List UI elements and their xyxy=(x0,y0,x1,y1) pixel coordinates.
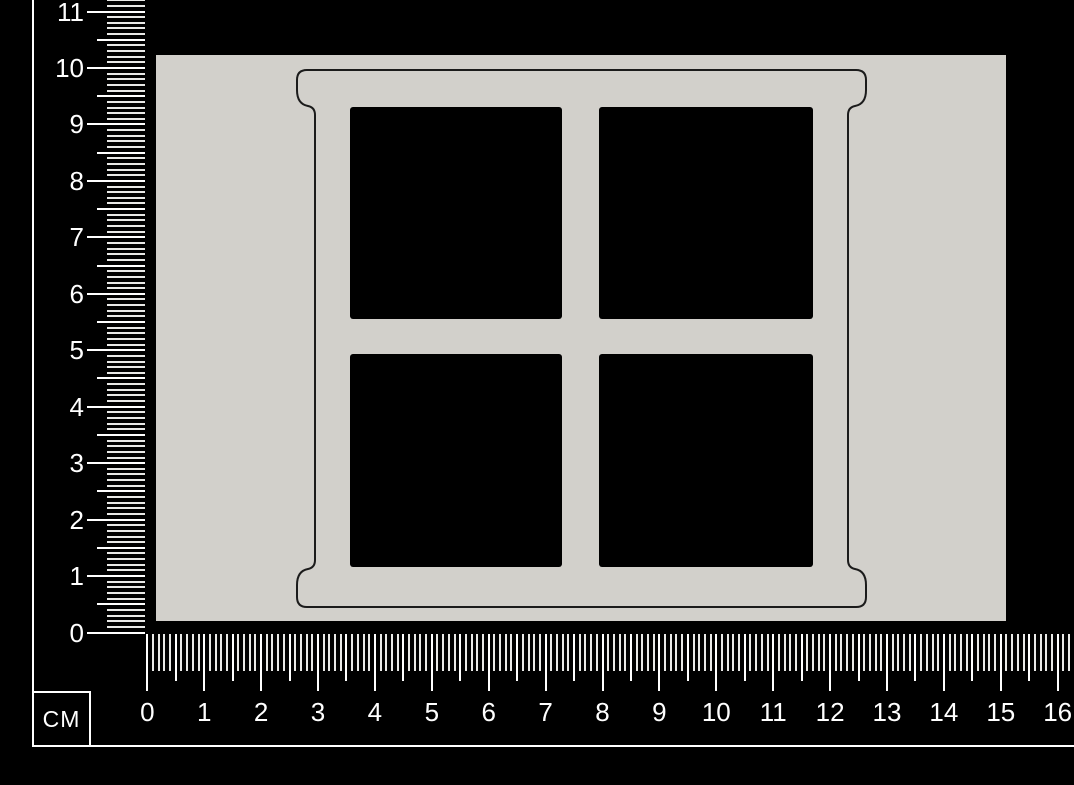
mm-tick xyxy=(363,634,365,671)
mm-tick xyxy=(425,634,427,671)
mm-tick xyxy=(562,634,564,671)
mm-tick xyxy=(107,78,145,80)
mm-tick xyxy=(107,259,145,261)
half-cm-tick xyxy=(687,634,689,681)
cm-tick xyxy=(87,349,145,351)
mm-tick xyxy=(107,101,145,103)
mm-tick xyxy=(107,276,145,278)
mm-tick xyxy=(158,634,160,671)
mm-tick xyxy=(107,355,145,357)
half-cm-tick xyxy=(345,634,347,681)
mm-tick xyxy=(670,634,672,671)
half-cm-tick xyxy=(97,434,145,436)
mm-tick xyxy=(1045,634,1047,671)
cm-tick xyxy=(203,634,205,691)
mm-tick xyxy=(107,327,145,329)
mm-tick xyxy=(852,634,854,671)
mm-tick xyxy=(107,581,145,583)
mm-tick xyxy=(107,73,145,75)
mm-tick xyxy=(323,634,325,671)
cm-tick xyxy=(545,634,547,691)
cm-tick xyxy=(602,634,604,691)
mm-tick xyxy=(465,634,467,671)
mm-tick xyxy=(528,634,530,671)
half-cm-tick xyxy=(232,634,234,681)
mm-tick xyxy=(880,634,882,671)
horizontal-ruler: 012345678910111213141516 xyxy=(0,630,1074,740)
vertical-ruler-ticks xyxy=(87,0,145,650)
mm-tick xyxy=(1023,634,1025,671)
cm-tick xyxy=(87,406,145,408)
horizontal-ruler-label: 12 xyxy=(800,697,860,727)
half-cm-tick xyxy=(573,634,575,681)
horizontal-ruler-label: 1 xyxy=(174,697,234,727)
mm-tick xyxy=(107,197,145,199)
mm-tick xyxy=(107,140,145,142)
vertical-ruler-label: 9 xyxy=(28,109,84,139)
mm-tick xyxy=(107,592,145,594)
mm-tick xyxy=(169,634,171,671)
mm-tick xyxy=(107,473,145,475)
mm-tick xyxy=(778,634,780,671)
mm-tick xyxy=(107,118,145,120)
cm-tick xyxy=(431,634,433,691)
mm-tick xyxy=(903,634,905,671)
mm-tick xyxy=(163,634,165,671)
mm-tick xyxy=(897,634,899,671)
mm-tick xyxy=(186,634,188,671)
vertical-ruler-labels: 01234567891011 xyxy=(28,0,84,650)
mm-tick xyxy=(482,634,484,671)
mm-tick xyxy=(533,634,535,671)
horizontal-ruler-label: 5 xyxy=(402,697,462,727)
cm-tick xyxy=(87,519,145,521)
mm-tick xyxy=(107,27,145,29)
mm-tick xyxy=(107,451,145,453)
mm-tick xyxy=(835,634,837,671)
mm-tick xyxy=(579,634,581,671)
mm-tick xyxy=(180,634,182,671)
mm-tick xyxy=(505,634,507,671)
window-pane-bottom-left xyxy=(350,354,562,567)
mm-tick xyxy=(840,634,842,671)
mm-tick xyxy=(641,634,643,671)
mm-tick xyxy=(954,634,956,671)
mm-tick xyxy=(107,16,145,18)
horizontal-ruler-ticks xyxy=(0,634,1074,692)
mm-tick xyxy=(380,634,382,671)
cm-tick xyxy=(87,11,145,13)
horizontal-ruler-label: 15 xyxy=(971,697,1031,727)
half-cm-tick xyxy=(402,634,404,681)
mm-tick xyxy=(152,634,154,671)
mm-tick xyxy=(607,634,609,671)
half-cm-tick xyxy=(97,39,145,41)
horizontal-ruler-labels: 012345678910111213141516 xyxy=(0,697,1074,729)
half-cm-tick xyxy=(289,634,291,681)
vertical-ruler-label: 5 xyxy=(28,335,84,365)
mm-tick xyxy=(875,634,877,671)
half-cm-tick xyxy=(97,208,145,210)
mm-tick xyxy=(391,634,393,671)
mm-tick xyxy=(454,634,456,671)
mm-tick xyxy=(784,634,786,671)
unit-label: CM xyxy=(43,706,81,733)
mm-tick xyxy=(419,634,421,671)
mm-tick xyxy=(107,214,145,216)
cm-tick xyxy=(488,634,490,691)
mm-tick xyxy=(107,191,145,193)
vertical-ruler-label: 7 xyxy=(28,222,84,252)
mm-tick xyxy=(522,634,524,671)
mm-tick xyxy=(107,513,145,515)
mm-tick xyxy=(107,383,145,385)
horizontal-ruler-label: 11 xyxy=(743,697,803,727)
half-cm-tick xyxy=(516,634,518,681)
mm-tick xyxy=(283,634,285,671)
border-line-vertical xyxy=(32,0,34,692)
mm-tick xyxy=(107,253,145,255)
vertical-ruler-label: 3 xyxy=(28,448,84,478)
horizontal-ruler-label: 4 xyxy=(345,697,405,727)
mm-tick xyxy=(254,634,256,671)
mm-tick xyxy=(107,163,145,165)
mm-tick xyxy=(107,33,145,35)
mm-tick xyxy=(926,634,928,671)
mm-tick xyxy=(499,634,501,671)
mm-tick xyxy=(107,428,145,430)
mm-tick xyxy=(738,634,740,671)
mm-tick xyxy=(266,634,268,671)
mm-tick xyxy=(1040,634,1042,671)
cm-tick xyxy=(943,634,945,691)
mm-tick xyxy=(107,485,145,487)
vertical-ruler-label: 1 xyxy=(28,561,84,591)
cm-tick xyxy=(1000,634,1002,691)
mm-tick xyxy=(107,620,145,622)
mm-tick xyxy=(107,202,145,204)
mm-tick xyxy=(243,634,245,671)
mm-tick xyxy=(107,411,145,413)
mm-tick xyxy=(294,634,296,671)
mm-tick xyxy=(567,634,569,671)
mm-tick xyxy=(107,457,145,459)
horizontal-ruler-label: 16 xyxy=(1028,697,1074,727)
mm-tick xyxy=(960,634,962,671)
mm-tick xyxy=(107,146,145,148)
horizontal-ruler-label: 14 xyxy=(914,697,974,727)
vertical-ruler-label: 6 xyxy=(28,279,84,309)
mm-tick xyxy=(385,634,387,671)
mm-tick xyxy=(107,44,145,46)
mm-tick xyxy=(107,310,145,312)
mm-tick xyxy=(107,366,145,368)
mm-tick xyxy=(539,634,541,671)
mm-tick xyxy=(653,634,655,671)
half-cm-tick xyxy=(801,634,803,681)
mm-tick xyxy=(107,304,145,306)
mm-tick xyxy=(107,586,145,588)
window-pane-top-left xyxy=(350,107,562,319)
mm-tick xyxy=(1017,634,1019,671)
mm-tick xyxy=(107,423,145,425)
mm-tick xyxy=(664,634,666,671)
cm-tick xyxy=(87,67,145,69)
horizontal-ruler-label: 0 xyxy=(117,697,177,727)
mm-tick xyxy=(107,445,145,447)
mm-tick xyxy=(107,615,145,617)
mm-tick xyxy=(795,634,797,671)
mm-tick xyxy=(442,634,444,671)
mm-tick xyxy=(869,634,871,671)
half-cm-tick xyxy=(630,634,632,681)
mm-tick xyxy=(107,282,145,284)
mm-tick xyxy=(107,298,145,300)
cm-tick xyxy=(772,634,774,691)
mm-tick xyxy=(949,634,951,671)
mm-tick xyxy=(675,634,677,671)
half-cm-tick xyxy=(97,265,145,267)
mm-tick xyxy=(584,634,586,671)
mm-tick xyxy=(215,634,217,671)
cm-tick xyxy=(317,634,319,691)
half-cm-tick xyxy=(744,634,746,681)
cm-tick xyxy=(1057,634,1059,691)
cm-tick xyxy=(146,634,148,691)
horizontal-ruler-label: 8 xyxy=(573,697,633,727)
mm-tick xyxy=(755,634,757,671)
cm-tick xyxy=(87,236,145,238)
mm-tick xyxy=(220,634,222,671)
mm-tick xyxy=(107,536,145,538)
mm-tick xyxy=(789,634,791,671)
product-photo: 01234567891011 012345678910111213141516 … xyxy=(0,0,1074,785)
cm-tick xyxy=(87,575,145,577)
cm-tick xyxy=(87,293,145,295)
mm-tick xyxy=(107,107,145,109)
cm-tick xyxy=(87,123,145,125)
cm-tick xyxy=(260,634,262,691)
mm-tick xyxy=(107,569,145,571)
mm-tick xyxy=(107,394,145,396)
mm-tick xyxy=(107,479,145,481)
mm-tick xyxy=(107,552,145,554)
cm-tick xyxy=(87,462,145,464)
mm-tick xyxy=(920,634,922,671)
mm-tick xyxy=(107,186,145,188)
mm-tick xyxy=(107,112,145,114)
mm-tick xyxy=(994,634,996,671)
mm-tick xyxy=(636,634,638,671)
mm-tick xyxy=(681,634,683,671)
mm-tick xyxy=(909,634,911,671)
mm-tick xyxy=(448,634,450,671)
mm-tick xyxy=(590,634,592,671)
mm-tick xyxy=(988,634,990,671)
mm-tick xyxy=(107,22,145,24)
mm-tick xyxy=(107,287,145,289)
vertical-ruler-label: 11 xyxy=(28,0,84,27)
mm-tick xyxy=(192,634,194,671)
half-cm-tick xyxy=(914,634,916,681)
mm-tick xyxy=(1051,634,1053,671)
mm-tick xyxy=(237,634,239,671)
mm-tick xyxy=(107,174,145,176)
mm-tick xyxy=(306,634,308,671)
mm-tick xyxy=(476,634,478,671)
mm-tick xyxy=(357,634,359,671)
mm-tick xyxy=(983,634,985,671)
mm-tick xyxy=(107,219,145,221)
half-cm-tick xyxy=(97,603,145,605)
vertical-ruler-label: 4 xyxy=(28,392,84,422)
mm-tick xyxy=(107,440,145,442)
half-cm-tick xyxy=(175,634,177,681)
mm-tick xyxy=(107,129,145,131)
mm-tick xyxy=(1068,634,1070,671)
mm-tick xyxy=(107,400,145,402)
mm-tick xyxy=(107,56,145,58)
mm-tick xyxy=(107,61,145,63)
mm-tick xyxy=(596,634,598,671)
vertical-ruler: 01234567891011 xyxy=(0,0,150,660)
mm-tick xyxy=(107,389,145,391)
half-cm-tick xyxy=(97,547,145,549)
mm-tick xyxy=(761,634,763,671)
cm-tick xyxy=(87,180,145,182)
mm-tick xyxy=(493,634,495,671)
mm-tick xyxy=(107,541,145,543)
mm-tick xyxy=(107,372,145,374)
mm-tick xyxy=(863,634,865,671)
mm-tick xyxy=(1005,634,1007,671)
window-pane-top-right xyxy=(599,107,813,319)
mm-tick xyxy=(1034,634,1036,671)
mm-tick xyxy=(721,634,723,671)
mm-tick xyxy=(334,634,336,671)
mm-tick xyxy=(550,634,552,671)
mm-tick xyxy=(107,417,145,419)
mm-tick xyxy=(107,270,145,272)
mm-tick xyxy=(107,558,145,560)
cm-tick xyxy=(374,634,376,691)
mm-tick xyxy=(226,634,228,671)
mm-tick xyxy=(107,344,145,346)
mm-tick xyxy=(812,634,814,671)
mm-tick xyxy=(408,634,410,671)
mm-tick xyxy=(510,634,512,671)
mm-tick xyxy=(351,634,353,671)
mm-tick xyxy=(107,626,145,628)
half-cm-tick xyxy=(459,634,461,681)
mm-tick xyxy=(932,634,934,671)
mm-tick xyxy=(107,609,145,611)
mm-tick xyxy=(704,634,706,671)
mm-tick xyxy=(107,225,145,227)
mm-tick xyxy=(619,634,621,671)
horizontal-ruler-label: 2 xyxy=(231,697,291,727)
mm-tick xyxy=(698,634,700,671)
horizontal-ruler-label: 13 xyxy=(857,697,917,727)
half-cm-tick xyxy=(97,490,145,492)
horizontal-ruler-label: 6 xyxy=(459,697,519,727)
vertical-ruler-label: 10 xyxy=(28,53,84,83)
mm-tick xyxy=(311,634,313,671)
border-line-horizontal xyxy=(32,745,1074,747)
mm-tick xyxy=(107,564,145,566)
mm-tick xyxy=(727,634,729,671)
mm-tick xyxy=(107,90,145,92)
half-cm-tick xyxy=(971,634,973,681)
horizontal-ruler-label: 9 xyxy=(629,697,689,727)
mm-tick xyxy=(277,634,279,671)
mm-tick xyxy=(647,634,649,671)
mm-tick xyxy=(471,634,473,671)
horizontal-ruler-label: 7 xyxy=(516,697,576,727)
mm-tick xyxy=(107,468,145,470)
mm-tick xyxy=(107,524,145,526)
mm-tick xyxy=(107,315,145,317)
mm-tick xyxy=(977,634,979,671)
half-cm-tick xyxy=(97,95,145,97)
mm-tick xyxy=(107,502,145,504)
vertical-ruler-label: 2 xyxy=(28,505,84,535)
mm-tick xyxy=(368,634,370,671)
mm-tick xyxy=(340,634,342,671)
mm-tick xyxy=(107,231,145,233)
mm-tick xyxy=(249,634,251,671)
mm-tick xyxy=(209,634,211,671)
mm-tick xyxy=(107,530,145,532)
mm-tick xyxy=(749,634,751,671)
mm-tick xyxy=(107,332,145,334)
mm-tick xyxy=(937,634,939,671)
half-cm-tick xyxy=(97,152,145,154)
mm-tick xyxy=(300,634,302,671)
mm-tick xyxy=(710,634,712,671)
mm-tick xyxy=(823,634,825,671)
mm-tick xyxy=(556,634,558,671)
mm-tick xyxy=(107,157,145,159)
mm-tick xyxy=(107,507,145,509)
mm-tick xyxy=(966,634,968,671)
mm-tick xyxy=(693,634,695,671)
mm-tick xyxy=(107,0,145,1)
half-cm-tick xyxy=(97,321,145,323)
half-cm-tick xyxy=(858,634,860,681)
cm-tick xyxy=(715,634,717,691)
mm-tick xyxy=(806,634,808,671)
cm-tick xyxy=(829,634,831,691)
mm-tick xyxy=(271,634,273,671)
half-cm-tick xyxy=(97,377,145,379)
unit-box: CM xyxy=(32,691,91,747)
mm-tick xyxy=(397,634,399,671)
vertical-ruler-label: 8 xyxy=(28,166,84,196)
mm-tick xyxy=(767,634,769,671)
mm-tick xyxy=(613,634,615,671)
mm-tick xyxy=(107,338,145,340)
mm-tick xyxy=(107,361,145,363)
mm-tick xyxy=(107,598,145,600)
window-pane-bottom-right xyxy=(599,354,813,567)
mm-tick xyxy=(624,634,626,671)
mm-tick xyxy=(846,634,848,671)
horizontal-ruler-label: 3 xyxy=(288,697,348,727)
mm-tick xyxy=(198,634,200,671)
mm-tick xyxy=(436,634,438,671)
mm-tick xyxy=(107,169,145,171)
